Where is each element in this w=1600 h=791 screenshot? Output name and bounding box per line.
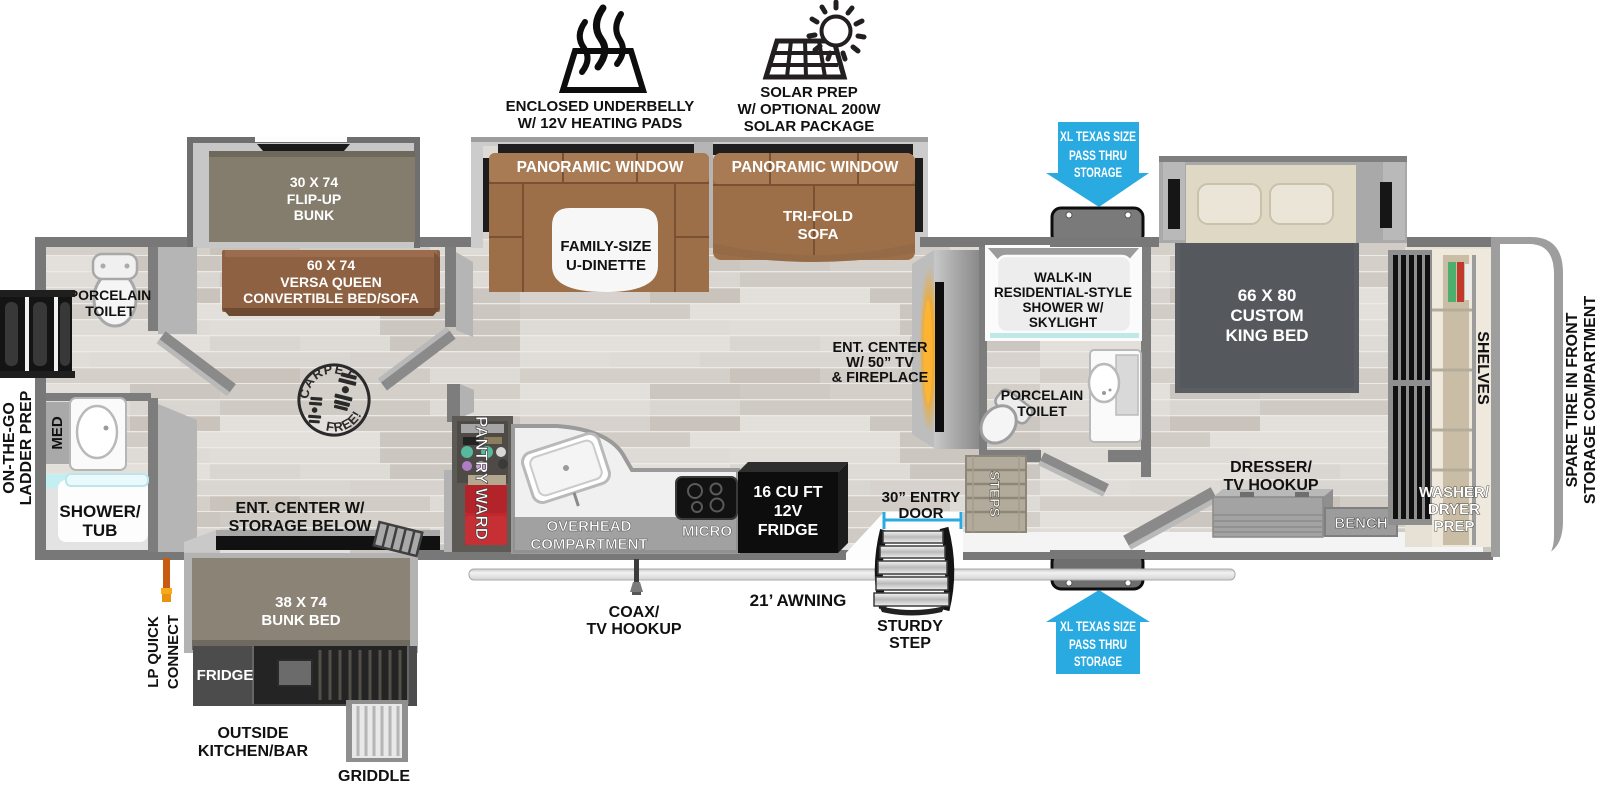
svg-text:SOFA: SOFA [798, 226, 839, 243]
svg-text:CONVERTIBLE BED/SOFA: CONVERTIBLE BED/SOFA [243, 290, 419, 306]
svg-text:PASS THRU: PASS THRU [1069, 637, 1127, 652]
svg-text:COAX/: COAX/ [609, 604, 660, 621]
svg-text:STURDY: STURDY [877, 618, 943, 635]
svg-text:& FIREPLACE: & FIREPLACE [832, 370, 929, 386]
svg-text:66 X 80: 66 X 80 [1238, 286, 1297, 305]
svg-text:TOILET: TOILET [85, 303, 135, 319]
svg-text:KITCHEN/BAR: KITCHEN/BAR [198, 743, 309, 760]
svg-text:OUTSIDE: OUTSIDE [217, 725, 288, 742]
svg-text:21’ AWNING: 21’ AWNING [750, 591, 847, 610]
svg-text:SOLAR PREP: SOLAR PREP [760, 84, 858, 101]
svg-text:STEPS: STEPS [987, 471, 1003, 517]
svg-text:38 X 74: 38 X 74 [275, 594, 327, 611]
svg-text:ENT. CENTER W/: ENT. CENTER W/ [236, 500, 365, 517]
svg-text:30 X 74: 30 X 74 [290, 174, 338, 190]
svg-text:STORAGE COMPARTMENT: STORAGE COMPARTMENT [1582, 296, 1599, 505]
svg-text:W/ 50” TV: W/ 50” TV [846, 355, 914, 371]
svg-text:MICRO: MICRO [682, 523, 732, 540]
svg-text:TRI-FOLD: TRI-FOLD [783, 208, 853, 225]
svg-text:SHELVES: SHELVES [1474, 331, 1491, 405]
svg-text:FRIDGE: FRIDGE [758, 522, 819, 539]
svg-text:RESIDENTIAL-STYLE: RESIDENTIAL-STYLE [994, 285, 1132, 300]
svg-text:TUB: TUB [83, 521, 118, 540]
svg-text:FAMILY-SIZE: FAMILY-SIZE [560, 238, 651, 255]
svg-text:ENT. CENTER: ENT. CENTER [832, 340, 928, 356]
svg-text:PANORAMIC WINDOW: PANORAMIC WINDOW [517, 159, 684, 176]
svg-text:STORAGE BELOW: STORAGE BELOW [229, 518, 373, 535]
svg-text:VERSA QUEEN: VERSA QUEEN [280, 274, 381, 290]
svg-text:WASHER/: WASHER/ [1419, 484, 1490, 501]
svg-text:SPARE TIRE IN FRONT: SPARE TIRE IN FRONT [1564, 312, 1581, 487]
svg-text:OVERHEAD: OVERHEAD [546, 518, 631, 535]
svg-text:60 X 74: 60 X 74 [307, 257, 355, 273]
svg-text:XL TEXAS SIZE: XL TEXAS SIZE [1060, 129, 1136, 144]
svg-text:FRIDGE: FRIDGE [197, 667, 254, 684]
svg-text:COMPARTMENT: COMPARTMENT [530, 536, 647, 553]
svg-text:GRIDDLE: GRIDDLE [338, 768, 410, 785]
svg-text:PORCELAIN: PORCELAIN [1001, 387, 1083, 403]
svg-text:MED: MED [49, 416, 66, 450]
svg-text:PREP: PREP [1434, 518, 1475, 535]
svg-text:STEP: STEP [889, 635, 931, 652]
svg-text:WARD: WARD [472, 488, 491, 540]
svg-text:PORCELAIN: PORCELAIN [69, 287, 151, 303]
svg-text:CUSTOM: CUSTOM [1230, 306, 1303, 325]
svg-text:30” ENTRY: 30” ENTRY [882, 489, 961, 506]
svg-text:STORAGE: STORAGE [1074, 654, 1122, 669]
svg-text:U-DINETTE: U-DINETTE [566, 257, 646, 274]
svg-text:CONNECT: CONNECT [165, 615, 182, 689]
svg-text:BENCH: BENCH [1334, 515, 1387, 532]
svg-text:KING BED: KING BED [1225, 326, 1308, 345]
svg-text:FLIP-UP: FLIP-UP [287, 191, 341, 207]
svg-text:ON-THE-GO: ON-THE-GO [1, 402, 18, 494]
svg-text:PANORAMIC WINDOW: PANORAMIC WINDOW [732, 159, 899, 176]
svg-text:STORAGE: STORAGE [1074, 165, 1122, 180]
svg-text:ENCLOSED UNDERBELLY: ENCLOSED UNDERBELLY [506, 98, 695, 115]
svg-text:SKYLIGHT: SKYLIGHT [1029, 315, 1098, 330]
svg-text:LADDER PREP: LADDER PREP [18, 390, 35, 505]
svg-text:SOLAR PACKAGE: SOLAR PACKAGE [744, 118, 875, 135]
svg-text:SHOWER/: SHOWER/ [59, 502, 141, 521]
svg-text:WALK-IN: WALK-IN [1034, 270, 1092, 285]
svg-text:TV HOOKUP: TV HOOKUP [586, 621, 681, 638]
svg-text:BUNK: BUNK [294, 207, 334, 223]
svg-text:PASS THRU: PASS THRU [1069, 148, 1127, 163]
svg-text:W/ OPTIONAL 200W: W/ OPTIONAL 200W [737, 101, 881, 118]
svg-text:12V: 12V [774, 503, 803, 520]
svg-text:TOILET: TOILET [1017, 403, 1067, 419]
svg-text:SHOWER W/: SHOWER W/ [1023, 300, 1104, 315]
svg-text:PANTRY: PANTRY [472, 416, 491, 485]
svg-text:LP QUICK: LP QUICK [145, 616, 162, 688]
svg-text:XL TEXAS SIZE: XL TEXAS SIZE [1060, 619, 1136, 634]
svg-text:DOOR: DOOR [899, 505, 944, 522]
svg-text:BUNK BED: BUNK BED [261, 612, 340, 629]
svg-text:DRYER: DRYER [1428, 501, 1480, 518]
svg-text:TV HOOKUP: TV HOOKUP [1223, 477, 1318, 494]
svg-text:16 CU FT: 16 CU FT [753, 484, 823, 501]
svg-text:W/ 12V HEATING PADS: W/ 12V HEATING PADS [518, 115, 682, 132]
svg-text:DRESSER/: DRESSER/ [1230, 459, 1312, 476]
